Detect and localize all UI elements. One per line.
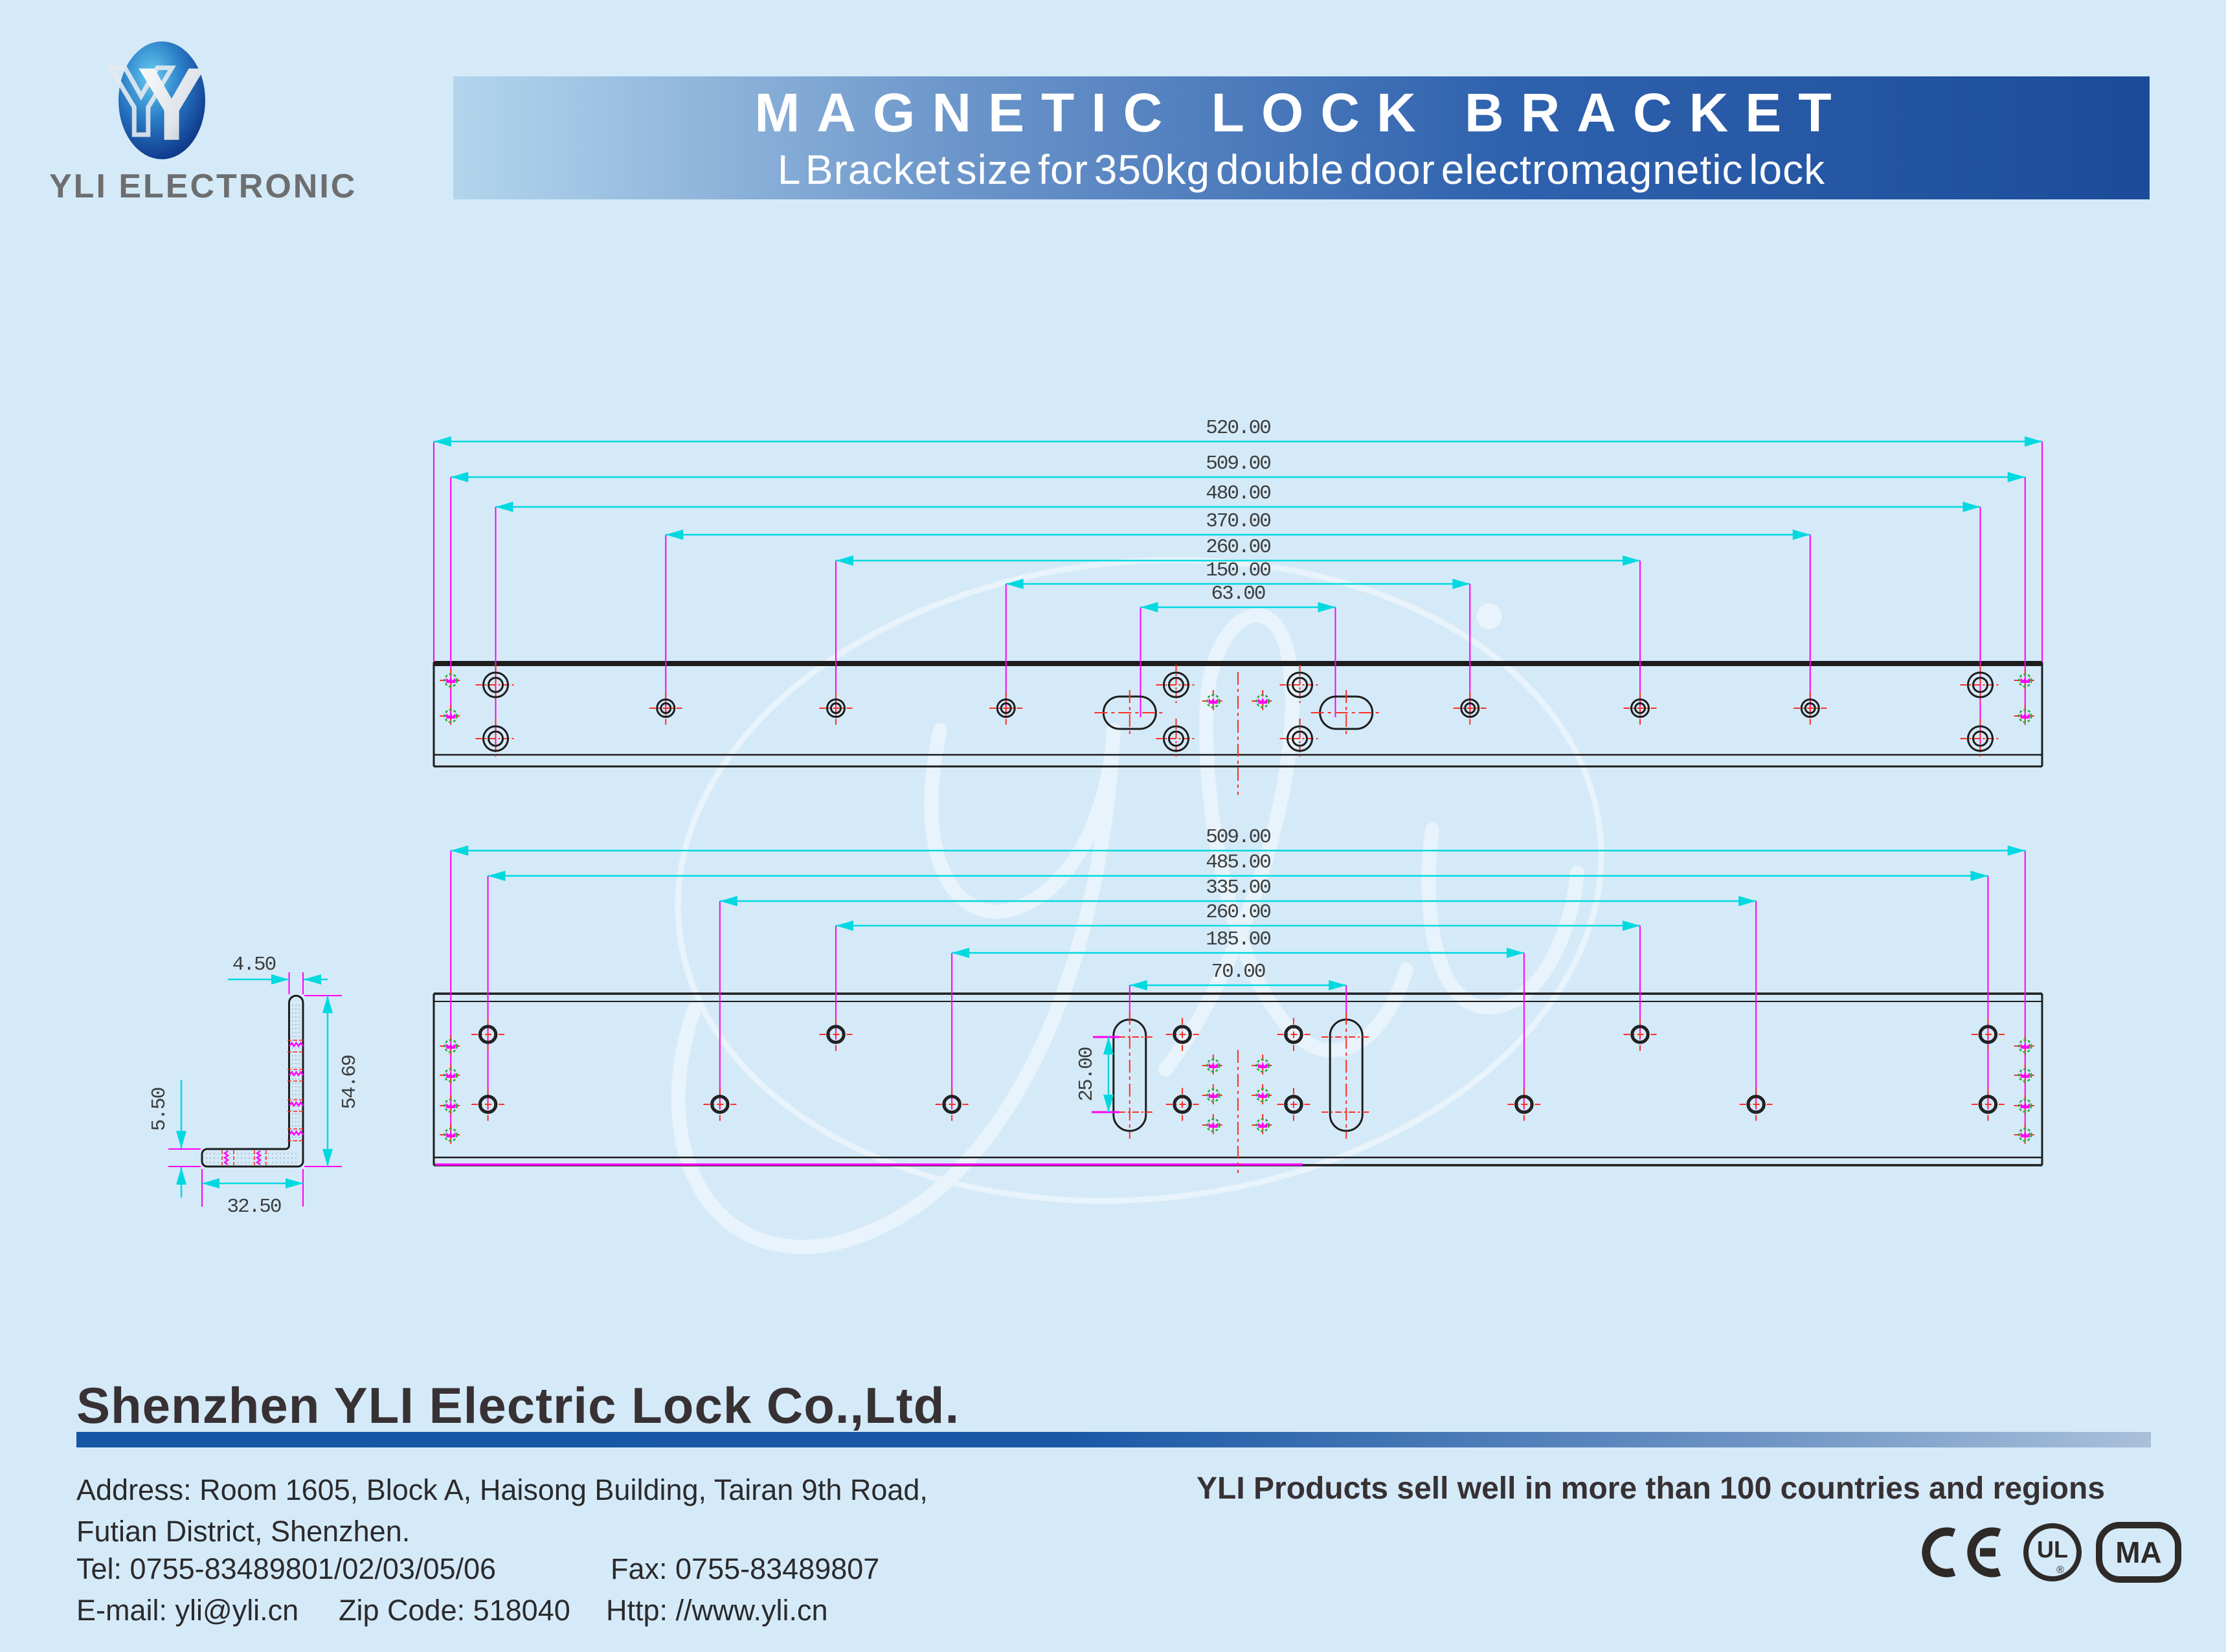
threaded-hole bbox=[445, 675, 457, 687]
thread-mark bbox=[446, 676, 455, 683]
threaded-hole bbox=[1207, 1060, 1219, 1072]
dim-arrow bbox=[666, 530, 683, 540]
hole-outer bbox=[1288, 673, 1312, 697]
dimension-label: 485.00 bbox=[1206, 851, 1270, 874]
dim-arrow bbox=[1103, 1095, 1114, 1112]
email-text: E-mail: yli@yli.cn bbox=[76, 1594, 298, 1627]
address-line-2: Futian District, Shenzhen. bbox=[76, 1515, 410, 1548]
hole-inner bbox=[481, 1097, 495, 1111]
page-title: MAGNETIC LOCK BRACKET bbox=[754, 85, 1848, 140]
hole-outer bbox=[997, 700, 1015, 717]
hole-outer bbox=[1164, 726, 1188, 751]
thread-mark bbox=[289, 1043, 303, 1046]
dim-arrow bbox=[286, 1178, 303, 1189]
dim-arrow bbox=[304, 974, 321, 985]
threaded-hole bbox=[2019, 710, 2031, 722]
dim-arrow bbox=[1006, 579, 1024, 589]
dimension-label: 54.69 bbox=[339, 1055, 361, 1109]
hole-outer bbox=[479, 1096, 497, 1113]
threaded-hole bbox=[1257, 1089, 1269, 1102]
datasheet-page: Y Y YLI ELECTRONIC MAGNETIC LOCK BRACKET… bbox=[0, 0, 2226, 1652]
side-view: 4.5054.695.5032.50 bbox=[148, 954, 361, 1218]
dim-arrow bbox=[271, 974, 289, 985]
thread-mark bbox=[2021, 1042, 2030, 1049]
dim-arrow bbox=[720, 896, 737, 906]
thread-mark bbox=[2021, 1102, 2030, 1108]
hole-inner bbox=[1175, 1027, 1189, 1042]
threaded-hole bbox=[1207, 695, 1219, 708]
hole-inner bbox=[1293, 678, 1307, 692]
dim-arrow bbox=[322, 996, 333, 1013]
thread-mark bbox=[289, 1072, 303, 1075]
dim-arrow bbox=[176, 1167, 186, 1185]
dimension-label: 520.00 bbox=[1206, 417, 1270, 440]
dimension-label: 5.50 bbox=[148, 1088, 171, 1131]
dim-arrow bbox=[2008, 472, 2025, 482]
hole-inner bbox=[661, 704, 671, 713]
hole-outer bbox=[711, 1096, 728, 1113]
hole-inner bbox=[481, 1027, 495, 1042]
hole-outer bbox=[1979, 1026, 1997, 1044]
hole-outer bbox=[1515, 1096, 1533, 1113]
dimension-label: 70.00 bbox=[1211, 961, 1265, 983]
dim-arrow bbox=[488, 871, 506, 881]
ce-mark-icon bbox=[1926, 1532, 1999, 1573]
thread-mark bbox=[289, 1102, 303, 1106]
thread-mark bbox=[1258, 1121, 1267, 1128]
dim-arrow bbox=[2008, 845, 2025, 856]
thread-mark bbox=[1258, 1091, 1267, 1098]
dimension-label: 4.50 bbox=[232, 954, 276, 976]
threaded-hole bbox=[445, 710, 457, 722]
threaded-hole bbox=[2019, 1069, 2031, 1082]
thread-mark bbox=[289, 1132, 303, 1135]
page-subtitle: L Bracket size for 350kg double door ele… bbox=[778, 149, 1825, 190]
thread-mark bbox=[1258, 1062, 1267, 1068]
dimension-label: 150.00 bbox=[1206, 559, 1270, 582]
hole-inner bbox=[1001, 704, 1011, 713]
dim-arrow bbox=[1970, 871, 1988, 881]
dimension-label: 260.00 bbox=[1206, 901, 1270, 924]
hole-outer bbox=[1285, 1096, 1302, 1113]
dimension-label: 185.00 bbox=[1206, 928, 1270, 951]
dim-arrow bbox=[1962, 502, 1980, 512]
thread-mark bbox=[1209, 1062, 1218, 1068]
hole-inner bbox=[1805, 704, 1815, 713]
dim-arrow bbox=[952, 948, 969, 958]
dim-arrow bbox=[1793, 530, 1810, 540]
hole-outer bbox=[1968, 673, 1992, 697]
hole-outer bbox=[657, 700, 675, 717]
threaded-hole bbox=[1257, 695, 1269, 708]
threaded-hole bbox=[445, 1100, 457, 1112]
hole-inner bbox=[1981, 1097, 1995, 1111]
hole-inner bbox=[829, 1027, 843, 1042]
dim-arrow bbox=[1623, 921, 1640, 931]
l-profile-outline bbox=[202, 996, 303, 1166]
threaded-hole bbox=[2019, 1040, 2031, 1053]
ul-mark-text: UL bbox=[2037, 1536, 2068, 1563]
dimension-label: 32.50 bbox=[227, 1196, 280, 1218]
dim-arrow bbox=[451, 845, 468, 856]
dim-arrow bbox=[1329, 980, 1346, 990]
dimension-label: 63.00 bbox=[1211, 583, 1265, 605]
dim-arrow bbox=[451, 472, 468, 482]
thread-mark bbox=[2021, 676, 2030, 683]
threaded-hole bbox=[2019, 675, 2031, 687]
bottom-view: 509.00485.00335.00260.00185.0070.0025.00 bbox=[434, 826, 2042, 1173]
threaded-hole bbox=[445, 1069, 457, 1082]
hole-inner bbox=[1175, 1097, 1189, 1111]
slot-hole bbox=[1330, 1020, 1362, 1131]
hole-outer bbox=[484, 726, 508, 751]
website-text: Http: //www.yli.cn bbox=[606, 1594, 828, 1627]
dim-arrow bbox=[1318, 602, 1335, 612]
threaded-hole bbox=[445, 1129, 457, 1141]
hole-outer bbox=[1801, 700, 1819, 717]
hole-inner bbox=[489, 678, 503, 692]
thread-mark bbox=[446, 1071, 455, 1078]
thread-mark bbox=[2021, 1071, 2030, 1078]
thread-mark bbox=[1209, 1091, 1218, 1098]
dim-arrow bbox=[1103, 1037, 1114, 1055]
hole-outer bbox=[827, 1026, 844, 1044]
dimension-label: 370.00 bbox=[1206, 510, 1270, 533]
hole-inner bbox=[1973, 678, 1987, 692]
dimension-label: 509.00 bbox=[1206, 826, 1270, 849]
thread-mark bbox=[446, 1042, 455, 1049]
hole-inner bbox=[1981, 1027, 1995, 1042]
hole-outer bbox=[943, 1096, 961, 1113]
hole-inner bbox=[1287, 1097, 1301, 1111]
email-line: E-mail: yli@yli.cn Zip Code: 518040 Http… bbox=[76, 1594, 298, 1627]
hole-inner bbox=[489, 731, 503, 746]
ul-mark-icon: UL ® bbox=[2026, 1526, 2079, 1579]
hole-outer bbox=[1632, 700, 1649, 717]
divider-bar bbox=[76, 1432, 2151, 1447]
dim-arrow bbox=[836, 921, 853, 931]
hole-inner bbox=[1517, 1097, 1531, 1111]
threaded-hole bbox=[2019, 1100, 2031, 1112]
dimension-label: 509.00 bbox=[1206, 452, 1270, 475]
ma-mark-text: MA bbox=[2115, 1535, 2162, 1569]
threaded-hole bbox=[2019, 1129, 2031, 1141]
dim-arrow bbox=[1738, 896, 1756, 906]
title-banner: MAGNETIC LOCK BRACKET L Bracket size for… bbox=[453, 76, 2150, 199]
top-view: 520.00509.00480.00370.00260.00150.0063.0… bbox=[434, 417, 2042, 795]
dim-arrow bbox=[1130, 980, 1147, 990]
hole-inner bbox=[945, 1097, 959, 1111]
hole-inner bbox=[1465, 704, 1475, 713]
tel-text: Tel: 0755-83489801/02/03/05/06 bbox=[76, 1552, 496, 1585]
dimension-label: 260.00 bbox=[1206, 536, 1270, 559]
dim-arrow bbox=[2025, 436, 2042, 447]
hole-outer bbox=[484, 673, 508, 697]
thread-mark bbox=[225, 1151, 228, 1165]
dimension-label: 480.00 bbox=[1206, 482, 1270, 505]
hole-inner bbox=[1973, 731, 1987, 746]
dim-arrow bbox=[836, 555, 853, 566]
dim-arrow bbox=[176, 1131, 186, 1148]
hole-inner bbox=[831, 704, 840, 713]
hole-outer bbox=[1461, 700, 1479, 717]
ma-mark-icon: MA bbox=[2099, 1525, 2178, 1579]
hole-outer bbox=[827, 700, 844, 717]
dimension-label: 25.00 bbox=[1075, 1047, 1098, 1101]
thread-mark bbox=[446, 1102, 455, 1108]
logo-monogram: Y bbox=[137, 46, 207, 162]
hole-outer bbox=[1748, 1096, 1765, 1113]
ul-reg-symbol: ® bbox=[2056, 1565, 2064, 1576]
hole-inner bbox=[713, 1097, 727, 1111]
threaded-hole bbox=[445, 1040, 457, 1053]
slot-hole bbox=[1114, 1020, 1146, 1131]
phone-line: Tel: 0755-83489801/02/03/05/06 Fax: 0755… bbox=[76, 1552, 496, 1586]
hole-outer bbox=[1174, 1026, 1191, 1044]
hole-outer bbox=[1288, 726, 1312, 751]
thread-mark bbox=[1258, 697, 1267, 704]
dim-arrow bbox=[322, 1149, 333, 1166]
products-tagline: YLI Products sell well in more than 100 … bbox=[1197, 1471, 2168, 1506]
dim-arrow bbox=[202, 1178, 219, 1189]
zip-text: Zip Code: 518040 bbox=[339, 1594, 570, 1627]
hole-inner bbox=[1749, 1097, 1763, 1111]
fax-text: Fax: 0755-83489807 bbox=[611, 1552, 879, 1586]
thread-mark bbox=[1209, 697, 1218, 704]
thread-mark bbox=[1209, 1121, 1218, 1128]
hole-outer bbox=[1979, 1096, 1997, 1113]
brand-text: YLI ELECTRONIC bbox=[49, 167, 357, 206]
certification-marks: UL ® MA bbox=[1897, 1515, 2201, 1599]
dim-arrow bbox=[434, 436, 451, 447]
slot-hole bbox=[1103, 697, 1156, 729]
thread-mark bbox=[2021, 1131, 2030, 1137]
dim-arrow bbox=[496, 502, 513, 512]
dim-arrow bbox=[1623, 555, 1640, 566]
hole-inner bbox=[1169, 678, 1183, 692]
address-line-1: Address: Room 1605, Block A, Haisong Bui… bbox=[76, 1473, 928, 1507]
hole-inner bbox=[1293, 731, 1307, 746]
dim-arrow bbox=[1452, 579, 1470, 589]
slot-hole bbox=[1320, 697, 1373, 729]
hole-outer bbox=[1164, 673, 1188, 697]
hole-inner bbox=[1633, 1027, 1647, 1042]
dim-arrow bbox=[1141, 602, 1158, 612]
threaded-hole bbox=[1207, 1089, 1219, 1102]
hole-outer bbox=[479, 1026, 497, 1044]
hole-inner bbox=[1636, 704, 1645, 713]
threaded-hole bbox=[1257, 1060, 1269, 1072]
threaded-hole bbox=[1207, 1119, 1219, 1132]
hole-outer bbox=[1968, 726, 1992, 751]
thread-mark bbox=[2021, 712, 2030, 719]
dim-arrow bbox=[1507, 948, 1524, 958]
hole-outer bbox=[1174, 1096, 1191, 1113]
hole-inner bbox=[1169, 731, 1183, 746]
yli-watermark bbox=[646, 515, 1633, 1247]
thread-mark bbox=[257, 1151, 260, 1165]
hole-outer bbox=[1285, 1026, 1302, 1044]
hole-inner bbox=[1287, 1027, 1301, 1042]
thread-mark bbox=[446, 1131, 455, 1137]
hole-outer bbox=[1632, 1026, 1649, 1044]
thread-mark bbox=[446, 712, 455, 719]
dimension-label: 335.00 bbox=[1206, 876, 1270, 899]
company-name: Shenzhen YLI Electric Lock Co.,Ltd. bbox=[76, 1376, 960, 1435]
threaded-hole bbox=[1257, 1119, 1269, 1132]
